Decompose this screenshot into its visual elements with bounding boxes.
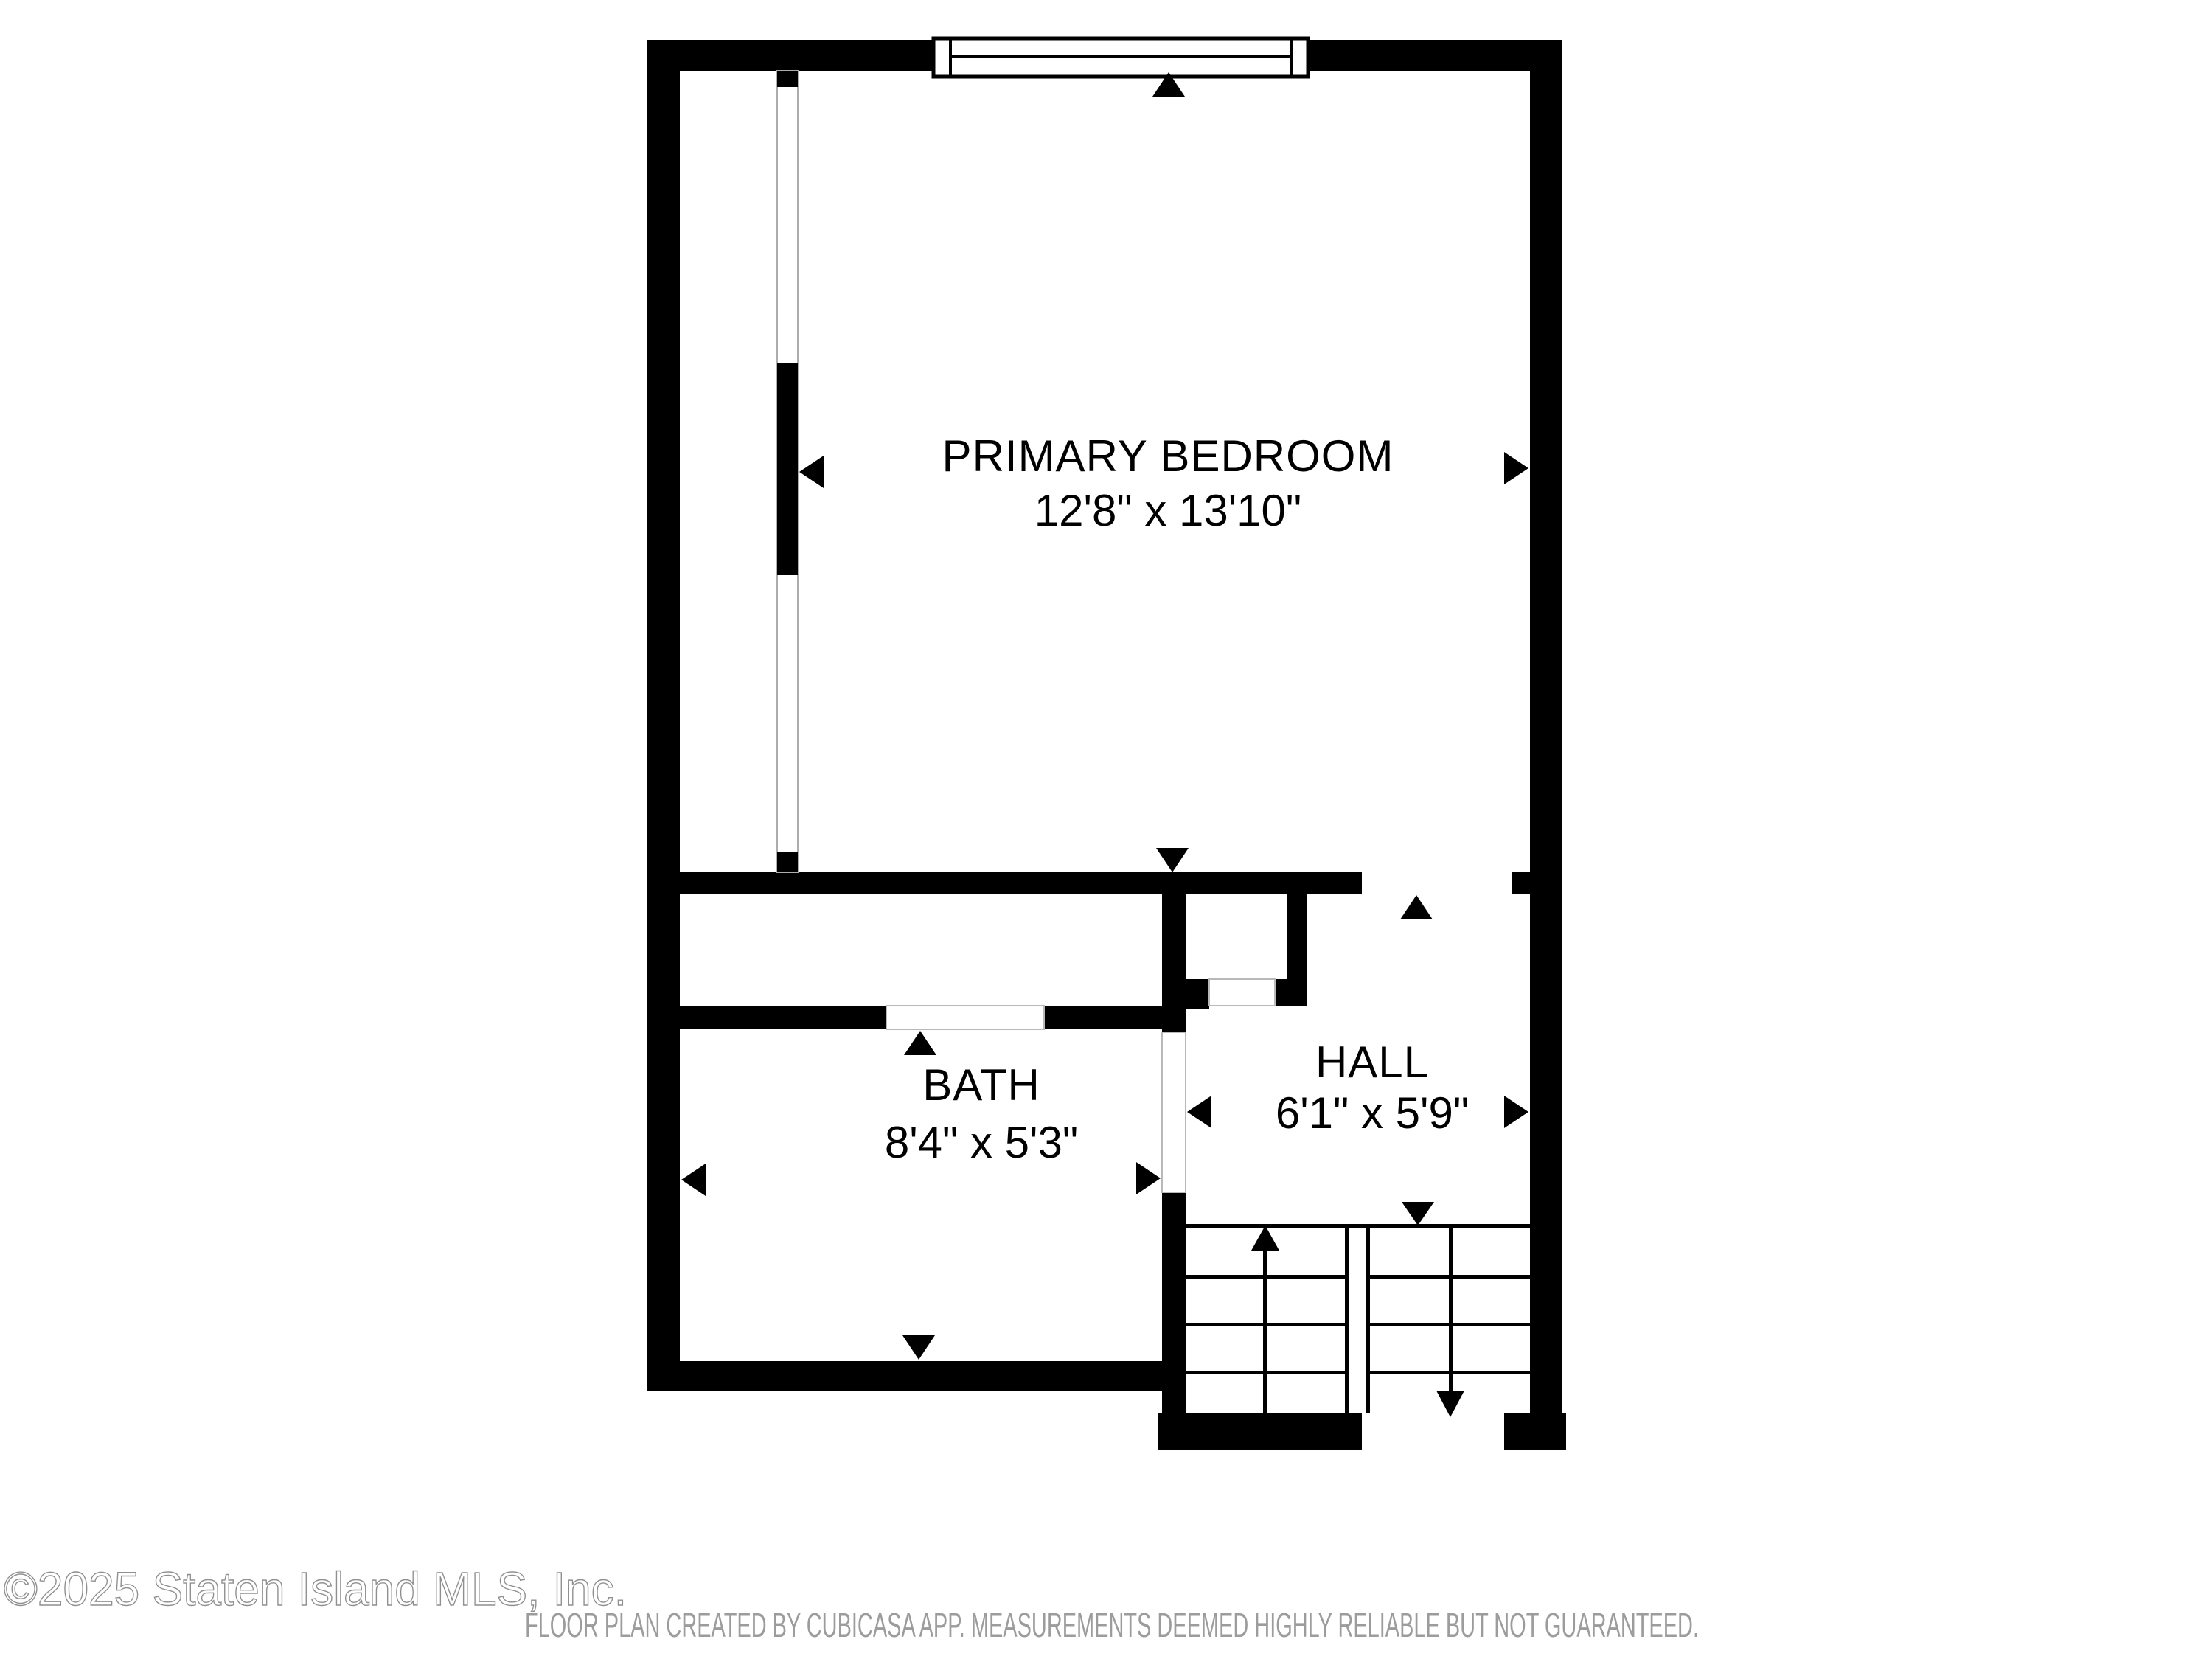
bath-top-wall-left [647, 1006, 886, 1029]
stairs-up-arrow-shaft [1263, 1248, 1267, 1413]
bath-bottom-triangle-down-icon [902, 1335, 935, 1360]
bedroom-bottom-triangle-down-icon [1156, 848, 1189, 872]
stairs-up-arrow-head [1251, 1225, 1279, 1251]
room-dimensions-primary-bedroom: 12'8" x 13'10" [1034, 486, 1301, 535]
window-mullion-left [949, 38, 952, 77]
hall-right-triangle-right-icon [1504, 1096, 1528, 1128]
nook-right-wall-foot [1275, 979, 1307, 1006]
bedroom-bottom-wall [647, 872, 1362, 894]
room-label-primary-bedroom: PRIMARY BEDROOM [942, 431, 1394, 481]
bath-right-triangle-right-icon [1136, 1162, 1161, 1194]
partition-black-top [777, 71, 798, 87]
bedroom-doorway-stub [1512, 872, 1562, 894]
bath-left-triangle-left-icon [681, 1164, 706, 1196]
bath-bottom-wall [647, 1361, 1186, 1391]
stairwell-left-wall [1162, 1391, 1186, 1413]
outer-wall-top-right [1308, 40, 1562, 71]
outer-wall-left [647, 40, 680, 1391]
outer-wall-top-left [647, 40, 933, 71]
nook-door-opening [1209, 979, 1275, 1006]
dimension-markers [681, 72, 1528, 1360]
room-dimensions-hall: 6'1" x 5'9" [1276, 1088, 1469, 1138]
stair-divider-left-rail [1345, 1224, 1349, 1413]
stair-divider-right-rail [1366, 1224, 1370, 1413]
stairs [1182, 1224, 1530, 1417]
bedroom-partition [777, 71, 798, 872]
window [933, 38, 1308, 77]
hall-top-triangle-up-icon [1400, 895, 1433, 919]
stairs-top-triangle-down-icon [1402, 1202, 1434, 1225]
stairs-down-arrow-head [1436, 1391, 1464, 1417]
partition-black-bottom [777, 852, 798, 872]
bedroom-right-triangle-right-icon [1504, 452, 1528, 484]
stairs-down-arrow-shaft [1449, 1225, 1453, 1391]
bath-door-triangle-up-icon [904, 1031, 936, 1055]
room-dimensions-bath: 8'4" x 5'3" [885, 1118, 1078, 1167]
stairs-top-edge [1182, 1224, 1530, 1228]
floor-plan-page: PRIMARY BEDROOM 12'8" x 13'10" BATH 8'4"… [0, 0, 2212, 1659]
window-mullion-right [1290, 38, 1293, 77]
outer-wall-right [1530, 40, 1562, 1413]
window-center-line [952, 55, 1290, 58]
footer-disclaimer: FLOOR PLAN CREATED BY CUBICASA APP. MEAS… [525, 1606, 1699, 1644]
stairs-bottom-wall [1158, 1413, 1362, 1450]
bath-top-wall-right [1044, 1006, 1186, 1029]
hall-left-triangle-left-icon [1187, 1096, 1211, 1128]
bath-door-opening [886, 1006, 1044, 1029]
room-label-hall: HALL [1315, 1037, 1429, 1087]
nook-right-wall [1287, 894, 1307, 979]
bedroom-left-triangle-left-icon [799, 456, 824, 488]
floor-plan-drawing: PRIMARY BEDROOM 12'8" x 13'10" BATH 8'4"… [0, 0, 2212, 1659]
stairs-down-arrow-icon [1436, 1225, 1464, 1417]
nook-door-left-jamb [1186, 979, 1209, 1009]
partition-black-middle [777, 363, 798, 575]
room-label-bath: BATH [922, 1060, 1040, 1110]
bottom-right-corner-wall [1504, 1413, 1566, 1450]
stairs-up-arrow-icon [1251, 1225, 1279, 1413]
bath-hall-door-opening [1162, 1032, 1186, 1192]
